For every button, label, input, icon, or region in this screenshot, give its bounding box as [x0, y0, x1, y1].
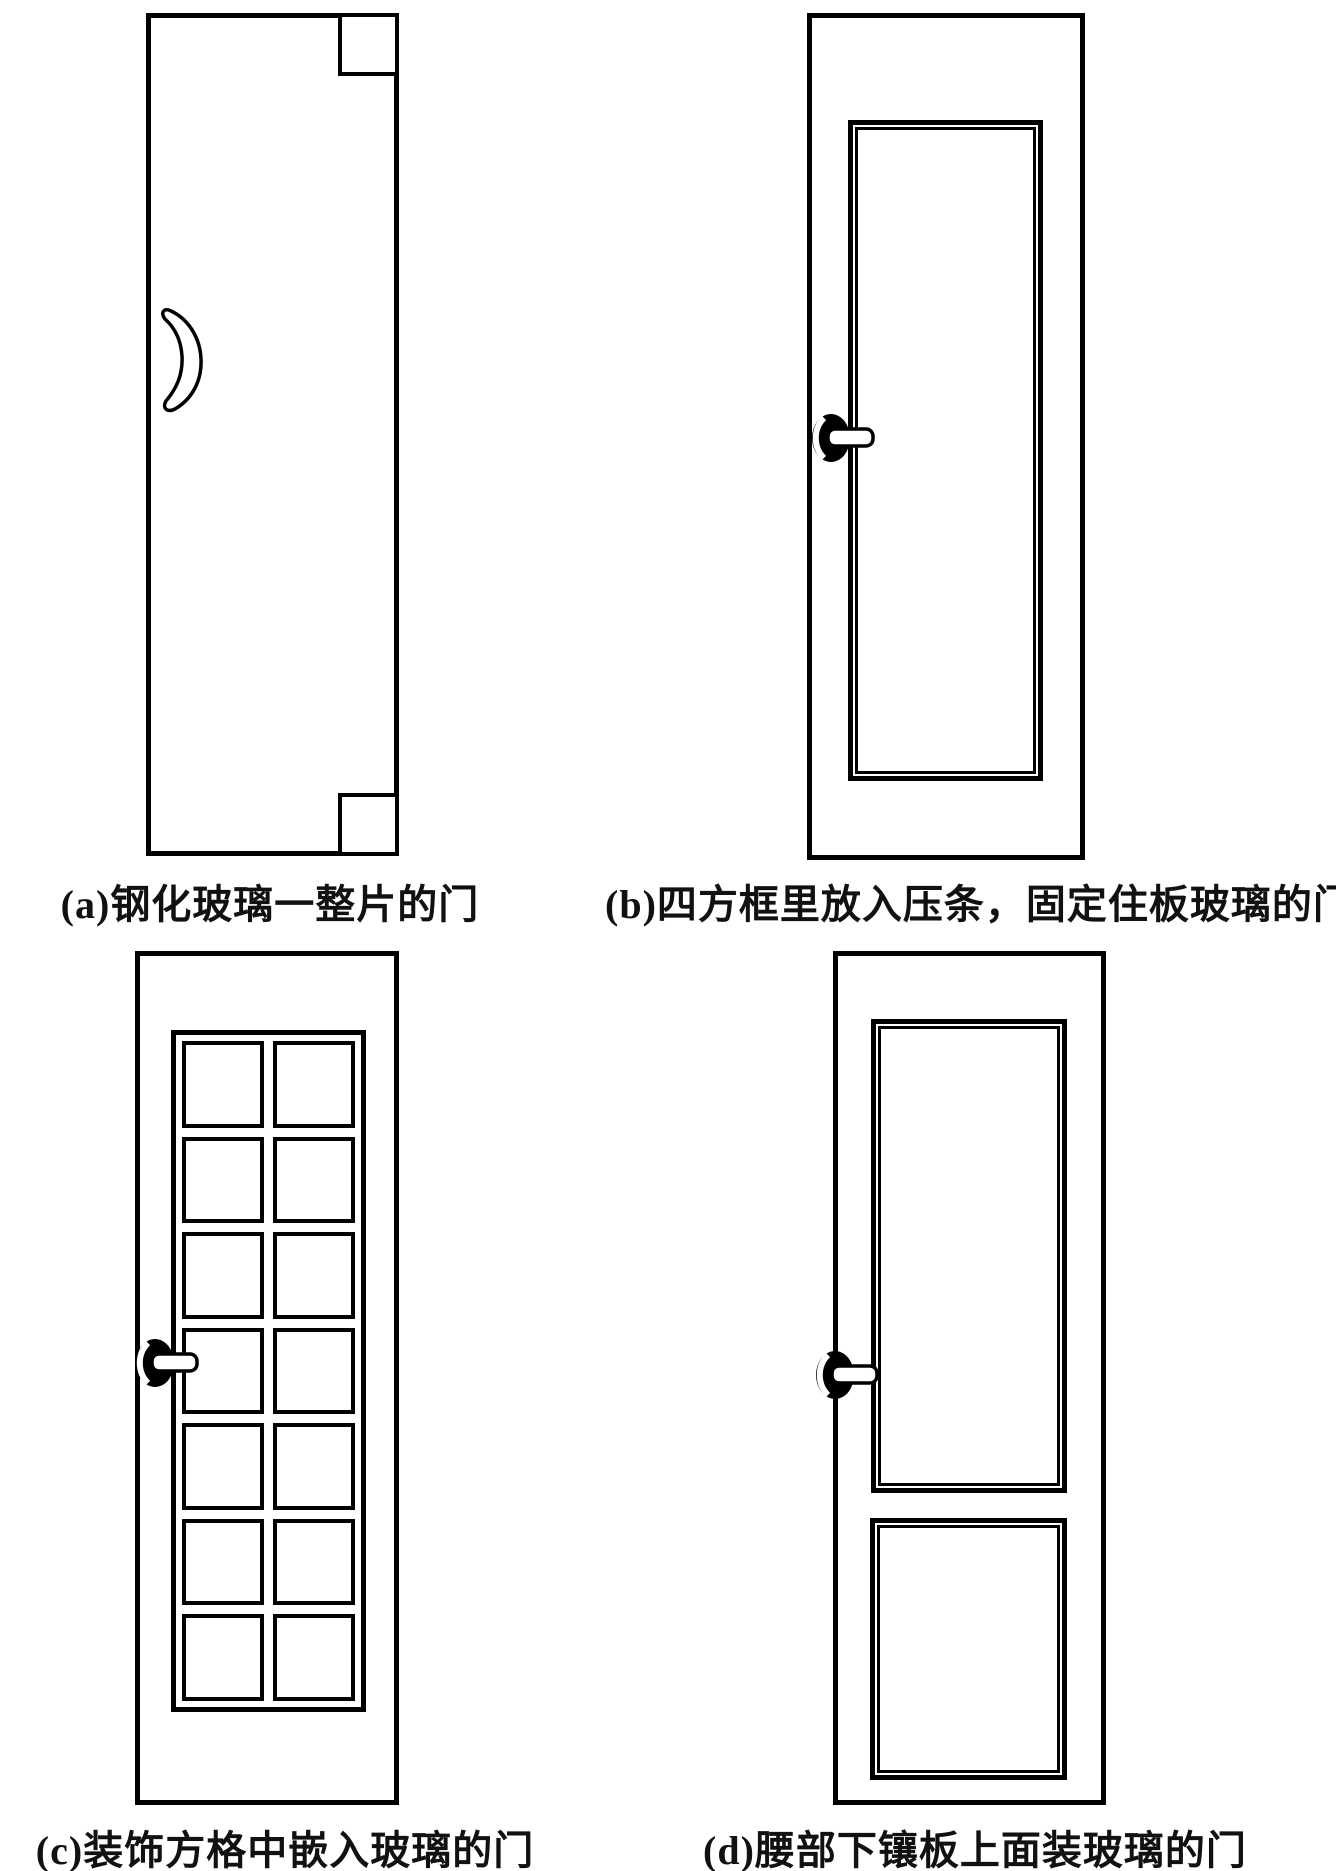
door-c-handle-icon: [131, 1328, 217, 1398]
door-c-glass-pane: [273, 1423, 355, 1510]
door-c-glass-pane: [273, 1137, 355, 1224]
figure-four-door-types: (a)钢化玻璃一整片的门 (b)四方框里放入压条，固定住板玻璃的门 (c)装饰方…: [0, 0, 1336, 1871]
door-c-glass-pane: [182, 1137, 264, 1224]
door-c-glass-pane: [273, 1041, 355, 1128]
door-b-handle-icon: [807, 403, 893, 473]
door-c-glass-pane: [273, 1232, 355, 1319]
door-c-glass-pane: [182, 1519, 264, 1606]
door-c-glass-pane: [273, 1614, 355, 1701]
door-d-upper-glass-panel: [871, 1019, 1067, 1493]
caption-door-b: (b)四方框里放入压条，固定住板玻璃的门: [605, 872, 1325, 930]
door-d-handle-icon: [811, 1340, 897, 1410]
door-a-top-corner-fitting: [338, 13, 399, 76]
door-c-glass-pane: [273, 1328, 355, 1415]
door-c-glass-pane: [273, 1519, 355, 1606]
caption-door-c: (c)装饰方格中嵌入玻璃的门: [35, 1818, 535, 1871]
door-a-bottom-corner-fitting: [338, 793, 399, 856]
door-a-crescent-handle-icon: [150, 298, 210, 420]
door-d-lower-panel-bead: [877, 1525, 1060, 1773]
door-c-glass-pane: [182, 1041, 264, 1128]
door-c-glass-pane: [182, 1423, 264, 1510]
door-a-outline: [146, 13, 399, 856]
door-c-glass-pane: [182, 1614, 264, 1701]
door-c-glass-pane: [182, 1232, 264, 1319]
door-d-upper-panel-bead: [878, 1026, 1060, 1486]
caption-door-a: (a)钢化玻璃一整片的门: [55, 872, 485, 930]
caption-door-d: (d)腰部下镶板上面装玻璃的门: [690, 1818, 1260, 1871]
door-d-lower-wood-panel: [870, 1518, 1067, 1780]
